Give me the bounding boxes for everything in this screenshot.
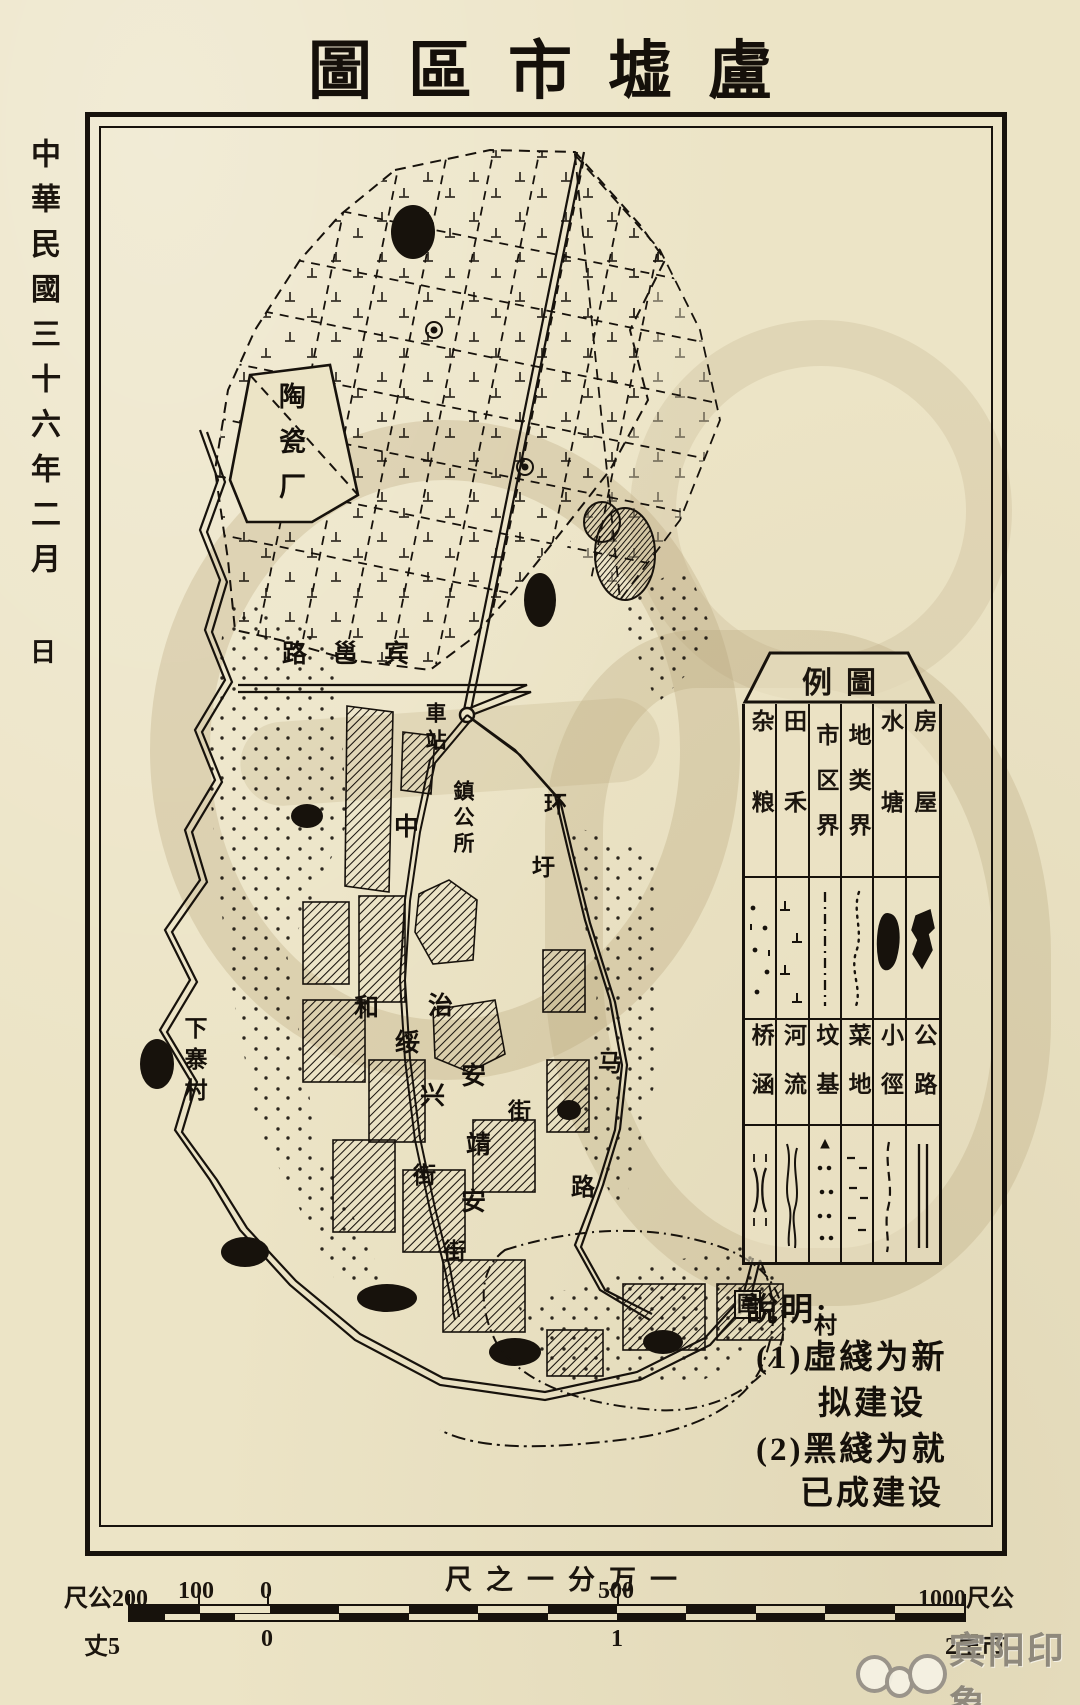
stream-symbol <box>777 1126 809 1262</box>
legend: 例圖 杂粮 田禾 市区界 地类界 水塘 房屋 <box>742 650 936 1265</box>
scale-tick <box>198 1594 200 1604</box>
grave-symbol <box>810 1126 842 1262</box>
legend-label: 菜地 <box>842 1020 874 1126</box>
street-char-an2: 安 <box>461 1190 486 1215</box>
legend-label: 坟基 <box>810 1020 842 1126</box>
notes-line: (1)虛綫为新 <box>756 1330 947 1378</box>
publisher-watermark: 宾阳印象 <box>856 1620 1080 1705</box>
notes-line: 已成建设 <box>800 1466 944 1514</box>
ring-char-ma: 马 <box>598 1052 622 1076</box>
legend-label: 杂粮 <box>745 704 777 878</box>
map-sheet: 圖區市墟盧 中華民國三十六年二月 日 <box>0 0 1080 1705</box>
scale-tick <box>267 1594 269 1604</box>
legend-label: 河流 <box>777 1020 809 1126</box>
factory-label: 陶瓷厂 <box>276 382 303 517</box>
scale-tick <box>964 1594 966 1604</box>
scale-top-label: 0 <box>260 1578 272 1605</box>
vegetable-plot-symbol <box>842 1126 874 1262</box>
street-char-jie3: 街 <box>443 1240 466 1263</box>
scale-bottom-label: 丈5 <box>84 1626 120 1661</box>
ring-char-lu: 路 <box>571 1176 595 1200</box>
scattered-dots-symbol <box>745 878 777 1020</box>
notes-line: 拟建设 <box>818 1376 926 1424</box>
pond-symbol <box>874 878 906 1020</box>
street-char-sui: 绥 <box>395 1031 420 1056</box>
scale-bar-bottom-row <box>130 1613 964 1621</box>
notes-line: (2)黑綫为就 <box>756 1422 947 1470</box>
highway-symbol <box>907 1126 939 1262</box>
street-char-zhi: 治 <box>428 994 453 1019</box>
street-char-an1: 安 <box>461 1064 486 1089</box>
date-sidebar: 中華民國三十六年二月 <box>20 138 64 588</box>
scale-bar-top-row <box>130 1606 964 1613</box>
station-label: 車站 <box>424 702 445 756</box>
legend-label: 地类界 <box>842 704 874 878</box>
rice-marks-symbol <box>777 878 809 1020</box>
notes-heading: 說明: <box>746 1284 830 1330</box>
legend-title: 例圖 <box>742 658 936 702</box>
scale-tick <box>128 1594 130 1604</box>
map-title: 圖區市墟盧 <box>0 20 1080 112</box>
legend-label: 田禾 <box>777 704 809 878</box>
landuse-boundary-symbol <box>842 878 874 1020</box>
scale-tick <box>617 1594 619 1604</box>
publisher-watermark-text: 宾阳印象 <box>949 1620 1080 1705</box>
ring-char-huan: 环 <box>544 793 567 816</box>
legend-table: 杂粮 田禾 市区界 地类界 水塘 房屋 <box>742 704 942 1265</box>
scale-top-label: 100 <box>178 1578 214 1605</box>
street-char-jie1: 街 <box>508 1100 531 1123</box>
footpath-symbol <box>874 1126 906 1262</box>
bridge-culvert-symbol <box>745 1126 777 1262</box>
street-char-zhong: 中 <box>394 815 419 840</box>
legend-label: 桥涵 <box>745 1020 777 1126</box>
legend-label: 市区界 <box>810 704 842 878</box>
street-char-xing: 兴 <box>420 1084 445 1109</box>
legend-label: 公路 <box>907 1020 939 1126</box>
district-boundary-symbol <box>810 878 842 1020</box>
legend-label: 小徑 <box>874 1020 906 1126</box>
town-office-label: 鎮公所 <box>452 780 473 858</box>
xiazhai-village-label: 下寨村 <box>182 1016 205 1109</box>
scale-top-label: 500 <box>598 1578 634 1605</box>
scale-bar <box>128 1604 966 1622</box>
legend-label: 房屋 <box>907 704 939 878</box>
street-char-jing: 靖 <box>466 1133 491 1158</box>
legend-label: 水塘 <box>874 704 906 878</box>
house-symbol <box>907 878 939 1020</box>
scale-bottom-label: 0 <box>261 1626 273 1653</box>
speech-bubble-icon <box>908 1654 946 1694</box>
legend-header: 例圖 <box>742 650 936 704</box>
scale-bottom-label: 1 <box>611 1626 623 1653</box>
street-char-he: 和 <box>354 996 379 1021</box>
scale-title: 尺之一分万一 <box>445 1558 691 1597</box>
binyong-road-label: 路邕宾 <box>282 642 435 667</box>
date-sidebar-day: 日 <box>30 632 56 669</box>
ring-char-xu: 圩 <box>532 856 555 879</box>
street-char-jie2: 街 <box>413 1164 436 1187</box>
